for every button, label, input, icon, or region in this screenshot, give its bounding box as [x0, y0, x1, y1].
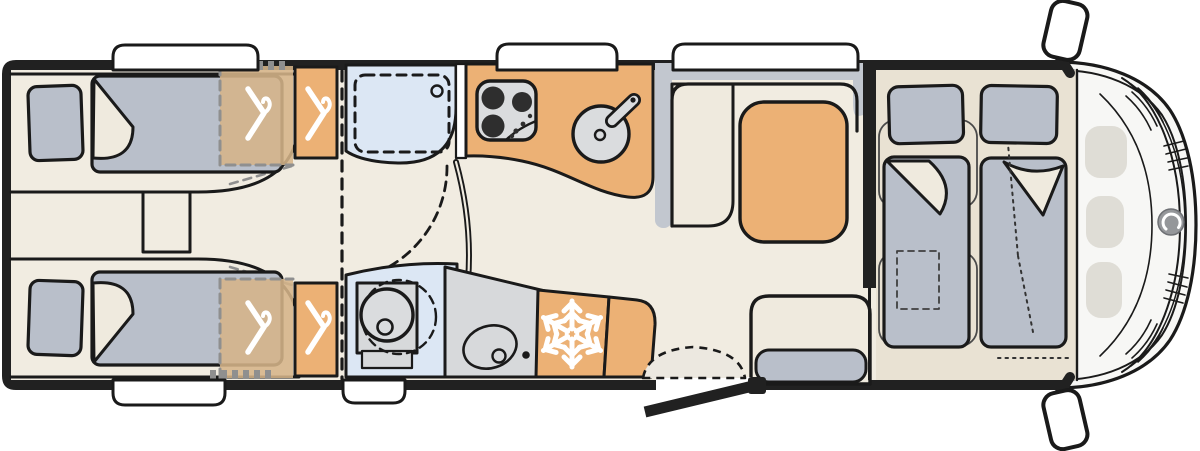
bed-step — [143, 192, 190, 252]
shower-drain-icon — [432, 86, 443, 97]
motorhome-floor-plan — [0, 0, 1200, 451]
toilet-flush — [378, 320, 393, 335]
door-hinge — [748, 377, 766, 394]
shower-cubicle — [346, 65, 456, 163]
wardrobe-overlay-top — [220, 66, 293, 165]
side-mirror-icon — [1041, 388, 1090, 451]
pillow-bottom — [28, 280, 84, 356]
pillow-right — [980, 85, 1057, 143]
wardrobe-bottom — [295, 283, 337, 376]
hob-icon — [477, 81, 536, 140]
wardrobe-top — [295, 67, 337, 158]
cab-seats-faded — [1085, 126, 1127, 318]
wardrobe-overlay-bottom — [220, 279, 293, 378]
side-mirror-icon — [1041, 0, 1090, 62]
kitchen-cabinet — [604, 297, 655, 377]
window-top-kitchen — [497, 44, 617, 70]
bench-seat-left — [672, 84, 733, 226]
bench-back-left — [655, 63, 672, 228]
brand-logo-icon — [1158, 209, 1184, 235]
pillow-left — [888, 85, 963, 144]
window-bottom-washroom — [343, 380, 405, 403]
travel-bench-cushion — [756, 350, 866, 382]
pillow-top — [28, 85, 84, 161]
window-bottom-rear — [113, 380, 225, 405]
washbasin-drain — [493, 350, 506, 363]
window-top-dinette — [673, 44, 858, 70]
floor-plan-canvas — [0, 0, 1200, 451]
toilet-pedestal — [362, 351, 412, 368]
cab — [1058, 62, 1196, 388]
dinette-table — [740, 102, 847, 242]
window-top-rear — [113, 45, 258, 70]
washbasin-tap-dot — [522, 351, 530, 359]
